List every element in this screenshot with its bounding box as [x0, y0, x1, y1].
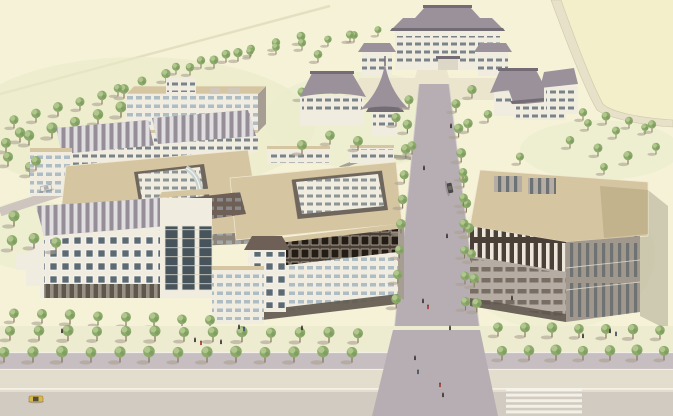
- taxi: [28, 396, 44, 403]
- pedestrian: [422, 299, 424, 304]
- avenue-south-leg: [372, 330, 498, 416]
- crosswalk-stripe: [506, 405, 582, 408]
- pedestrian: [417, 370, 419, 375]
- median-strip: [0, 352, 673, 370]
- crosswalk-stripe: [506, 394, 582, 397]
- crosswalk-stripe: [506, 388, 582, 391]
- pedestrian: [449, 326, 451, 331]
- pedestrian: [301, 326, 303, 331]
- pedestrian: [582, 334, 584, 339]
- pedestrian: [243, 327, 245, 332]
- pedestrian: [238, 325, 240, 330]
- pedestrian: [423, 166, 425, 171]
- pedestrian: [194, 338, 196, 343]
- pedestrian: [414, 356, 416, 361]
- east-library-building: [470, 170, 668, 330]
- pedestrian: [200, 341, 202, 346]
- pedestrian: [442, 393, 444, 398]
- pedestrian: [609, 329, 611, 334]
- palace-west-pavilion: [358, 43, 396, 76]
- glazed-bay-section: [158, 188, 218, 298]
- crosswalk-stripe: [506, 399, 582, 402]
- east-annex: [212, 266, 264, 324]
- pedestrian: [61, 329, 63, 334]
- palace-entrance: [438, 58, 458, 70]
- crosswalk-stripe: [506, 410, 582, 413]
- pedestrian: [446, 234, 448, 239]
- pedestrian: [450, 124, 452, 129]
- palace-upper-roof: [415, 7, 480, 18]
- far-east-pavilion: [540, 68, 578, 114]
- pedestrian: [615, 332, 617, 337]
- architectural-rendering: Aerial perspective architectural renderi…: [0, 0, 673, 416]
- pedestrian: [511, 296, 513, 301]
- pedestrian: [220, 340, 222, 345]
- pedestrian: [427, 305, 429, 310]
- pedestrian: [439, 383, 441, 388]
